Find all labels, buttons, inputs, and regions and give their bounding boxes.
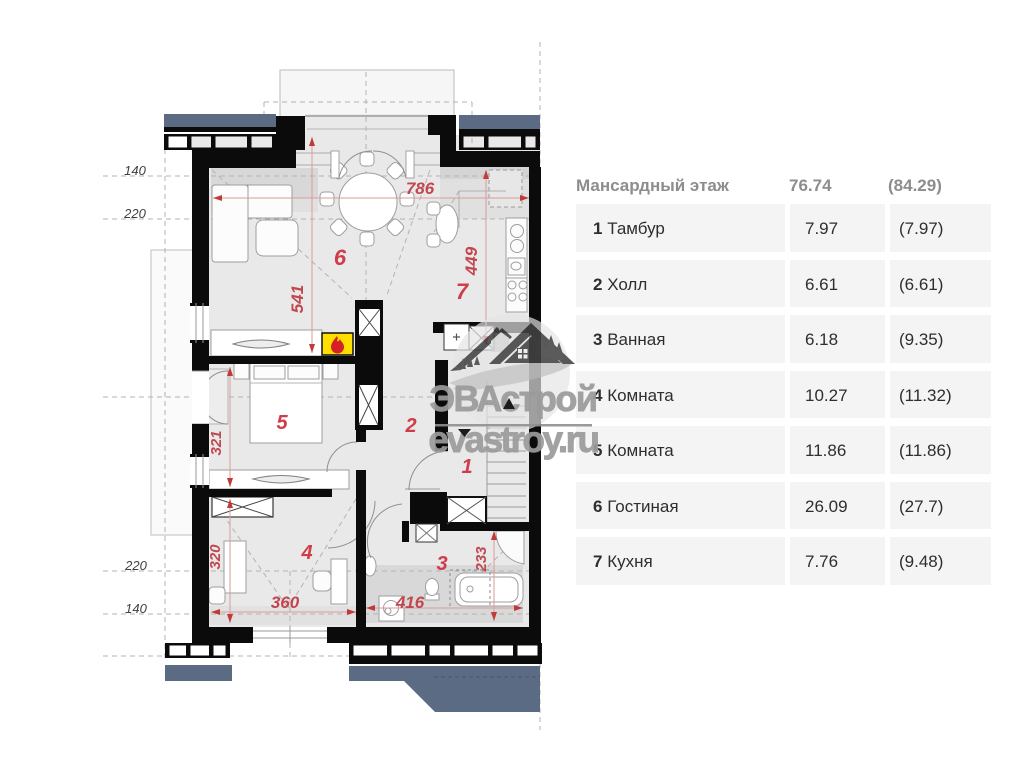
svg-text:220: 220 xyxy=(124,558,147,573)
svg-text:449: 449 xyxy=(462,246,481,276)
svg-text:541: 541 xyxy=(288,285,307,313)
svg-text:6: 6 xyxy=(334,245,347,270)
svg-text:320: 320 xyxy=(207,544,224,570)
svg-text:416: 416 xyxy=(395,593,425,612)
svg-text:220: 220 xyxy=(123,206,146,221)
svg-text:321: 321 xyxy=(208,430,225,455)
svg-text:5: 5 xyxy=(276,412,288,434)
svg-text:7: 7 xyxy=(456,279,470,304)
svg-text:786: 786 xyxy=(406,179,435,198)
svg-text:ЭВАстрой: ЭВАстрой xyxy=(429,378,596,419)
svg-text:233: 233 xyxy=(473,546,490,573)
svg-text:evastroy.ru: evastroy.ru xyxy=(428,419,598,460)
svg-text:360: 360 xyxy=(271,593,300,612)
svg-text:4: 4 xyxy=(300,542,312,564)
svg-text:2: 2 xyxy=(404,415,416,437)
svg-text:140: 140 xyxy=(124,163,146,178)
svg-text:3: 3 xyxy=(436,553,447,575)
svg-text:140: 140 xyxy=(125,601,147,616)
